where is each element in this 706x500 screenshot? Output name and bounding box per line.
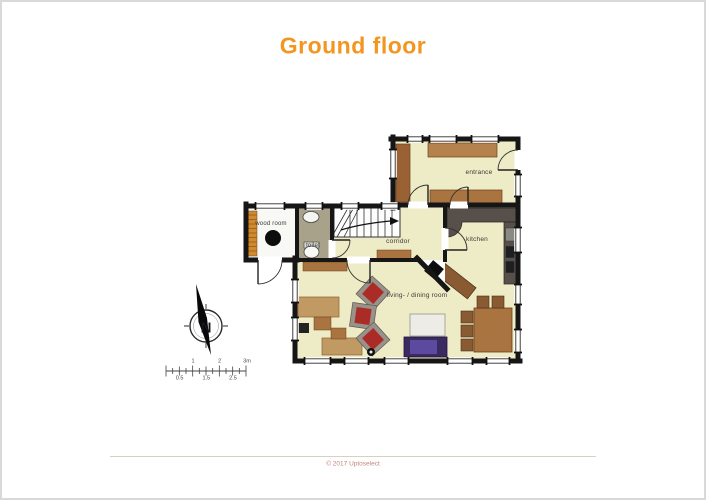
- desk-left-chair: [314, 317, 331, 330]
- kitchen-stove: [506, 246, 515, 258]
- wood-room-exterior-door: [258, 257, 282, 285]
- scale-label-1-5m: 1.5: [202, 376, 210, 382]
- room-label-wood-room: wood room: [255, 221, 286, 227]
- room-label-kitchen: kitchen: [466, 237, 488, 244]
- entrance-wardrobe: [396, 144, 410, 202]
- sideboard: [303, 262, 347, 271]
- scale-label-0-5m: 0.5: [176, 376, 184, 382]
- room-label-toilet: toilet: [306, 243, 320, 249]
- desk-left: [298, 297, 339, 317]
- sofa-cushion: [410, 340, 437, 354]
- entrance-bench-top: [428, 143, 497, 157]
- dining-chair: [461, 339, 473, 351]
- scale-label-2-5m: 2.5: [229, 376, 237, 382]
- dining-table: [474, 308, 512, 352]
- wood-stove: [265, 230, 281, 246]
- dining-chair: [492, 296, 504, 308]
- speaker-center: [370, 351, 373, 354]
- room-label-entrance: entrance: [466, 170, 493, 177]
- room-label-living-dining: living- / dining room: [387, 293, 448, 300]
- dining-chair: [461, 325, 473, 337]
- room-label-corridor: corridor: [386, 239, 410, 246]
- firewood-rack: [248, 211, 257, 256]
- entrance-bench-bottom: [430, 190, 502, 203]
- page-title: Ground floor: [0, 33, 706, 60]
- kitchen-fridge: [506, 261, 515, 273]
- kitchen-sink: [506, 228, 515, 241]
- scale-label-3m: 3m: [243, 359, 251, 365]
- coffee-table: [410, 314, 445, 336]
- desk-bottom: [322, 338, 362, 355]
- compass-north-label: N: [201, 321, 212, 336]
- corridor-mat: [377, 250, 411, 259]
- scale-label-2m: 2: [218, 359, 221, 365]
- floor-plan-drawing: [0, 0, 706, 500]
- stereo-cabinet: [298, 323, 309, 333]
- dining-chair: [477, 296, 489, 308]
- footer-divider: [110, 456, 596, 457]
- copyright-text: © 2017 Uptoselect: [0, 461, 706, 468]
- toilet-sink: [303, 212, 319, 223]
- scale-label-1m: 1: [191, 359, 194, 365]
- floor-plan-page: Ground floor entrance wood room toilet c…: [0, 0, 706, 500]
- dining-chair: [461, 311, 473, 323]
- desk-bottom-chair: [331, 328, 346, 339]
- staircase: [334, 208, 400, 237]
